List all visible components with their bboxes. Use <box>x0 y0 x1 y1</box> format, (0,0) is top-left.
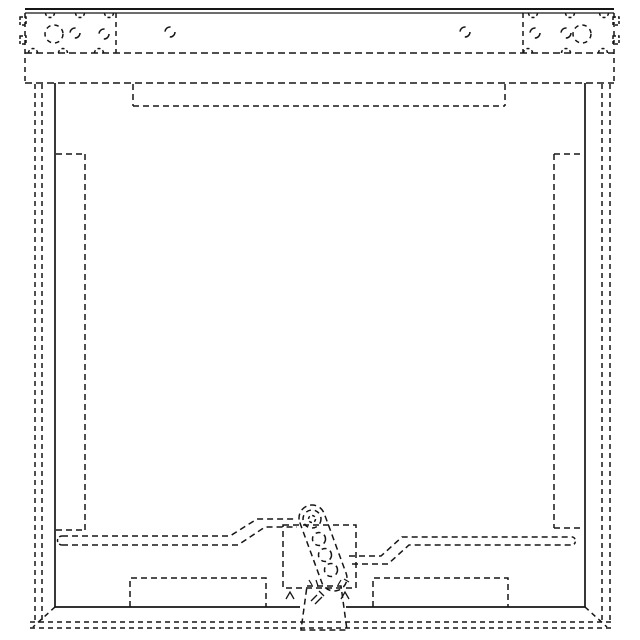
top-seam-notch-2 <box>76 13 85 18</box>
top-seam-notch-3 <box>105 13 114 18</box>
cad-drawing <box>0 0 640 640</box>
right-bracket-hole-a <box>530 28 540 38</box>
spring-tick-c <box>319 591 324 596</box>
spring-tick-a <box>311 595 317 601</box>
bottom-right-miter <box>585 607 607 627</box>
right-rail-upper <box>349 537 573 556</box>
arm-link-1 <box>313 533 326 546</box>
top-seam-notch-5 <box>566 13 575 18</box>
left-bracket-hole-a <box>70 28 80 38</box>
hinge-bracket <box>301 586 347 630</box>
top-rail-hole-left <box>165 27 175 37</box>
arm-link-2 <box>319 549 332 562</box>
bottom-left-miter <box>33 607 55 627</box>
hinge-arm-body <box>299 505 347 591</box>
bottom-left-plate <box>130 578 266 607</box>
left-rail-end-cap <box>58 536 63 545</box>
top-seam-notch-4 <box>529 13 538 18</box>
right-rail-end-cap <box>573 537 575 545</box>
arm-end-tick-c <box>338 580 341 585</box>
arm-link-3 <box>325 564 338 577</box>
right-bracket-pilot-hole <box>573 25 591 43</box>
left-rail-upper <box>62 519 296 536</box>
arm-pivot-inner <box>309 516 316 523</box>
right-rail-lower <box>352 545 573 564</box>
arm-end-tick-a <box>309 580 312 585</box>
spring-tick-b <box>315 597 322 604</box>
latch-housing <box>283 525 356 588</box>
arm-end-tick-d <box>344 579 349 582</box>
top-seam-notch-1 <box>46 13 55 18</box>
top-rail-hole-right <box>460 27 470 37</box>
arm-end-tick-b <box>316 580 318 586</box>
technical-drawing-page <box>0 0 640 640</box>
bottom-right-plate <box>373 578 508 607</box>
top-seam-notch-6 <box>600 13 609 18</box>
left-bracket-pilot-hole <box>45 25 63 43</box>
right-bracket-hole-b <box>561 28 571 38</box>
left-bracket-hole-b <box>99 29 109 39</box>
housing-foot-left <box>286 592 294 599</box>
